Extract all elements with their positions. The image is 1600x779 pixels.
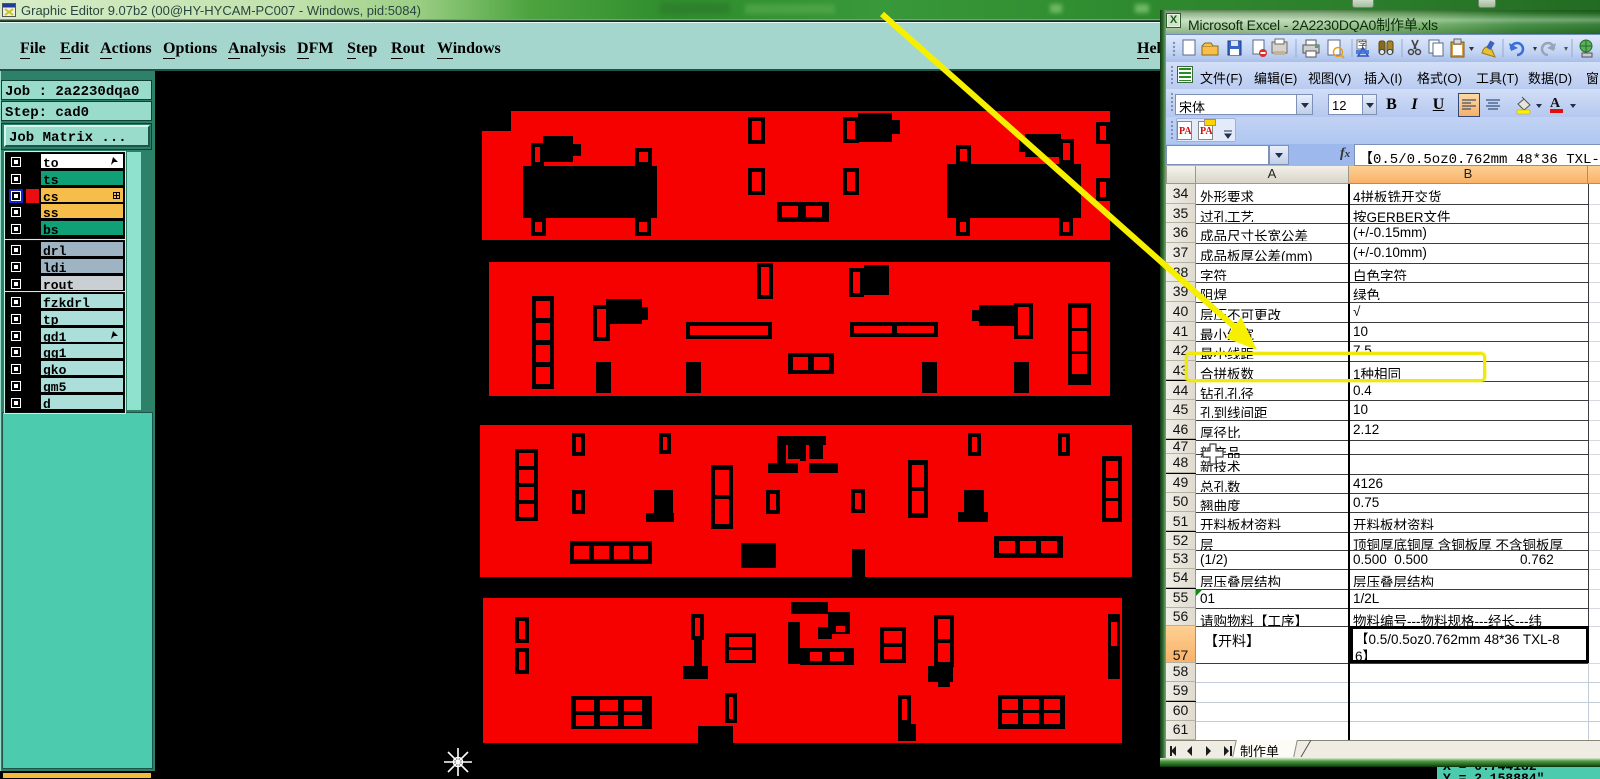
svg-text:A: A <box>1550 96 1561 111</box>
